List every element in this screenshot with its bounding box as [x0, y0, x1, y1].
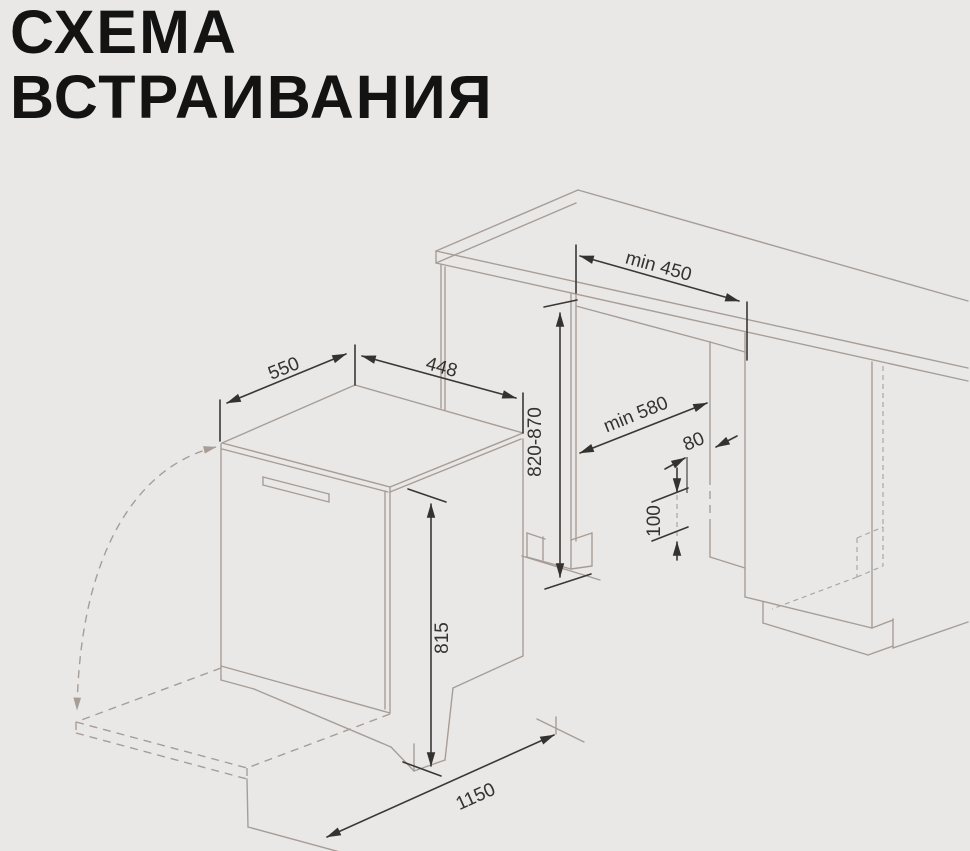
dim-550: 550 — [220, 345, 355, 441]
dim-label-820-870: 820-870 — [525, 407, 546, 477]
door-swing-arc — [77, 447, 216, 710]
dim-label-448: 448 — [423, 353, 459, 382]
dim-min-450: min 450 — [576, 245, 747, 360]
dim-label-550: 550 — [265, 353, 302, 384]
countertop — [436, 190, 968, 381]
dim-100: 100 — [644, 468, 688, 560]
dim-label-min-450: min 450 — [623, 248, 694, 286]
dim-label-100: 100 — [644, 505, 665, 537]
installation-scheme-page: СХЕМА ВСТРАИВАНИЯ — [0, 0, 970, 851]
door-open-projection — [76, 668, 584, 851]
counter-left-end-panel — [441, 265, 445, 410]
door-handle — [263, 477, 329, 502]
dim-80: 80 — [665, 428, 737, 493]
dim-1150: 1150 — [327, 735, 554, 837]
dim-label-80: 80 — [680, 428, 708, 456]
dim-label-1150: 1150 — [453, 779, 499, 815]
page-title-line2: ВСТРАИВАНИЯ — [10, 65, 494, 130]
page-title-line1: СХЕМА — [10, 0, 494, 65]
niche-left-wall — [522, 293, 745, 580]
dim-820-870: 820-870 — [525, 300, 591, 589]
dim-815: 815 — [403, 489, 453, 776]
dishwasher — [221, 385, 523, 771]
socket-zone-dashed — [772, 366, 883, 609]
page-title: СХЕМА ВСТРАИВАНИЯ — [10, 0, 494, 130]
dim-label-815: 815 — [432, 622, 453, 654]
